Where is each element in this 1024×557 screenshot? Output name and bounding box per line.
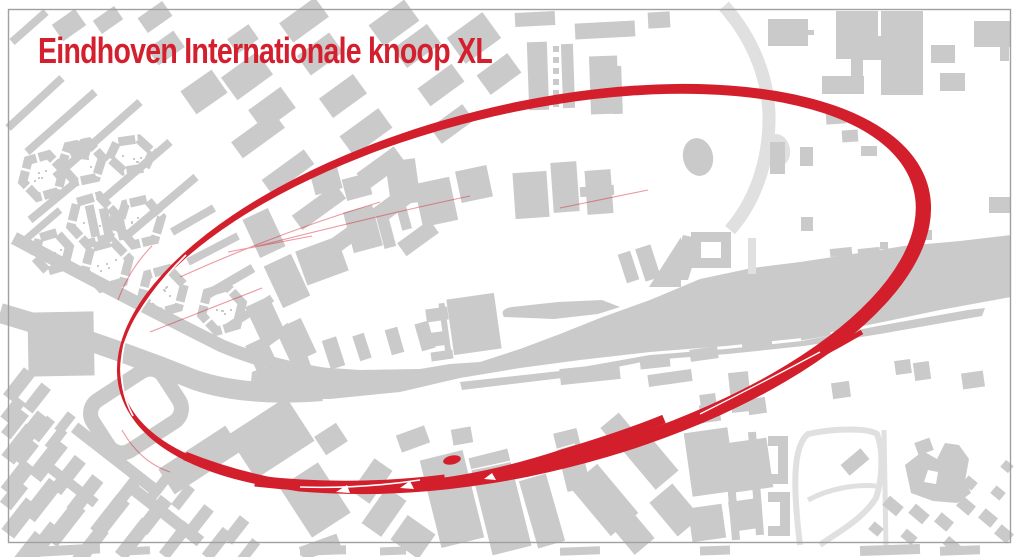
svg-text:Eindhoven Internationale knoop: Eindhoven Internationale knoop XL [38, 30, 493, 71]
